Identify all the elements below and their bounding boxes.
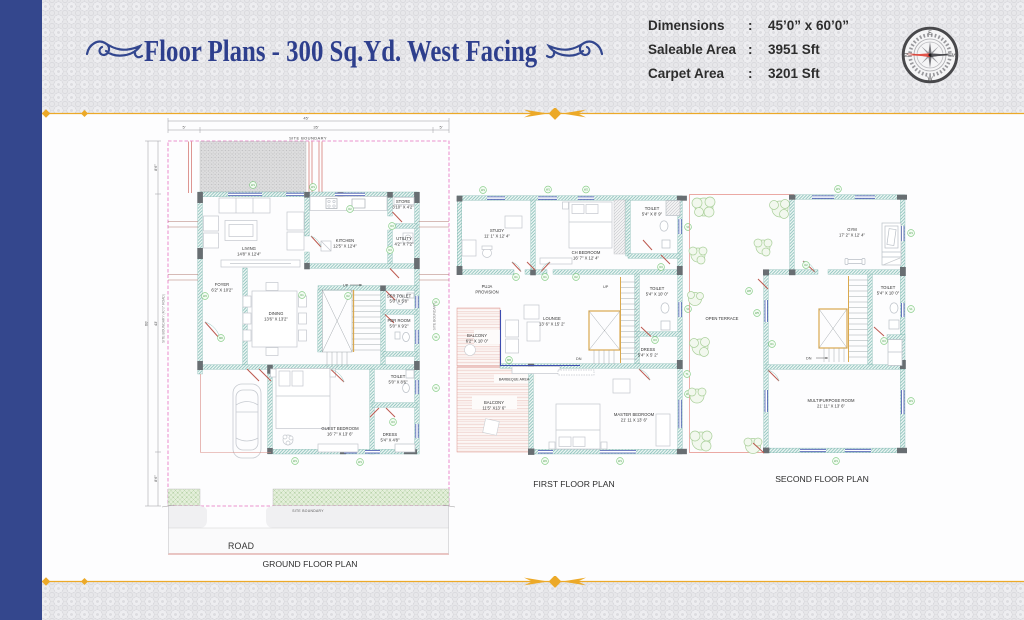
svg-text:SITE BOUNDARY: SITE BOUNDARY	[433, 302, 437, 330]
svg-text:D2: D2	[574, 275, 578, 279]
svg-text:TOILET: TOILET	[650, 286, 665, 291]
svg-text:D3: D3	[882, 339, 886, 343]
svg-text:11'5" X13' 6": 11'5" X13' 6"	[482, 406, 506, 411]
svg-text:OPEN TERRACE: OPEN TERRACE	[706, 316, 739, 321]
svg-text:8'6": 8'6"	[153, 475, 158, 482]
svg-text:14'8" X 12'4": 14'8" X 12'4"	[237, 252, 261, 257]
svg-text:W1: W1	[836, 187, 840, 191]
svg-text:W2: W2	[203, 294, 207, 298]
svg-text:TOILET: TOILET	[645, 206, 660, 211]
svg-text:21' 11 X 13' 6": 21' 11 X 13' 6"	[621, 418, 648, 423]
svg-text:5'4" X 4'8": 5'4" X 4'8"	[380, 438, 400, 443]
svg-text:D2: D2	[346, 294, 350, 298]
svg-text:BALCONY: BALCONY	[467, 333, 487, 338]
svg-text:D3: D3	[390, 224, 394, 228]
svg-text:W1: W1	[546, 188, 550, 192]
svg-text:D1: D1	[300, 293, 304, 297]
svg-text:V1: V1	[434, 335, 438, 339]
svg-text:3'10" X 4'2": 3'10" X 4'2"	[392, 205, 414, 210]
svg-text:5'4" X 8' 9": 5'4" X 8' 9"	[642, 212, 663, 217]
svg-text:FOYER: FOYER	[215, 282, 229, 287]
svg-text:W1: W1	[251, 183, 255, 187]
svg-text:LOUNGE: LOUNGE	[543, 316, 561, 321]
svg-text:60': 60'	[144, 321, 149, 326]
svg-text:UP: UP	[343, 284, 349, 288]
svg-text:4'2" X 7'2": 4'2" X 7'2"	[394, 242, 414, 247]
svg-text:D2: D2	[804, 263, 808, 267]
svg-text:D3: D3	[391, 420, 395, 424]
svg-text:17' 2" X 12' 4": 17' 2" X 12' 4"	[839, 233, 866, 238]
svg-text:W1: W1	[293, 459, 297, 463]
svg-text:45': 45'	[303, 116, 308, 121]
svg-text:D3: D3	[659, 265, 663, 269]
svg-text:35': 35'	[313, 125, 318, 130]
svg-text:12'5" X 12'4": 12'5" X 12'4"	[333, 244, 357, 249]
svg-text:UTILITY: UTILITY	[396, 236, 412, 241]
svg-text:5': 5'	[183, 125, 186, 130]
svg-text:ROAD: ROAD	[228, 541, 254, 551]
svg-text:STUDY: STUDY	[490, 228, 504, 233]
svg-text:BALCONY: BALCONY	[484, 400, 504, 405]
svg-text:5': 5'	[440, 125, 443, 130]
svg-text:8'6": 8'6"	[153, 164, 158, 171]
svg-text:STORE: STORE	[396, 199, 411, 204]
svg-text:MASTER BEDROOM: MASTER BEDROOM	[614, 412, 655, 417]
svg-text:DN: DN	[576, 357, 582, 361]
svg-text:W1: W1	[358, 460, 362, 464]
svg-text:BARBEQUE AREA: BARBEQUE AREA	[499, 378, 530, 382]
svg-text:5'4" X 10' 0": 5'4" X 10' 0"	[877, 291, 900, 296]
svg-text:5'0" X 5'8": 5'0" X 5'8"	[389, 299, 409, 304]
svg-text:SITE BOUNDARY: SITE BOUNDARY	[289, 136, 327, 141]
svg-text:5'0" X 8'6": 5'0" X 8'6"	[388, 380, 408, 385]
svg-text:V1: V1	[909, 307, 913, 311]
svg-text:PDR ROOM: PDR ROOM	[387, 318, 411, 323]
svg-text:GYM: GYM	[847, 227, 857, 232]
svg-text:DN: DN	[806, 357, 812, 361]
svg-text:PROVISION: PROVISION	[475, 290, 498, 295]
svg-text:FIRST FLOOR PLAN: FIRST FLOOR PLAN	[533, 479, 615, 489]
svg-text:W1: W1	[481, 188, 485, 192]
svg-text:MD: MD	[219, 336, 223, 340]
svg-text:MB: MB	[507, 358, 511, 362]
svg-text:V1: V1	[434, 386, 438, 390]
svg-text:W1: W1	[618, 459, 622, 463]
svg-text:21' 11" X 13' 6": 21' 11" X 13' 6"	[817, 404, 846, 409]
svg-text:DINING: DINING	[269, 311, 284, 316]
svg-text:W1: W1	[311, 185, 315, 189]
svg-text:D1: D1	[543, 275, 547, 279]
svg-text:TOILET: TOILET	[881, 285, 896, 290]
svg-text:D3: D3	[388, 248, 392, 252]
svg-text:GUEST BEDROOM: GUEST BEDROOM	[321, 426, 359, 431]
svg-text:16' 7" X 13' 6": 16' 7" X 13' 6"	[327, 432, 354, 437]
svg-text:11' 1" X 12' 4": 11' 1" X 12' 4"	[484, 234, 510, 239]
svg-text:5'4" X 10' 0": 5'4" X 10' 0"	[646, 292, 669, 297]
svg-text:UP: UP	[603, 285, 609, 289]
svg-text:PUJA: PUJA	[482, 284, 493, 289]
svg-text:DRESS: DRESS	[383, 432, 398, 437]
svg-text:W2: W2	[584, 188, 588, 192]
svg-text:MULTIPURPOSE ROOM: MULTIPURPOSE ROOM	[808, 398, 855, 403]
svg-text:TOILET: TOILET	[391, 374, 406, 379]
svg-text:W8: W8	[747, 289, 751, 293]
svg-text:5'4" X 5' 2": 5'4" X 5' 2"	[638, 353, 659, 358]
svg-text:13' 6" X 15' 2": 13' 6" X 15' 2"	[539, 322, 566, 327]
svg-text:43': 43'	[153, 321, 158, 326]
svg-text:DRESS: DRESS	[641, 347, 656, 352]
svg-text:SITE BOUNDARY (40'0" ROAD): SITE BOUNDARY (40'0" ROAD)	[162, 294, 166, 343]
svg-text:W1: W1	[909, 399, 913, 403]
svg-text:SECOND FLOOR PLAN: SECOND FLOOR PLAN	[775, 474, 869, 484]
svg-text:LIVING: LIVING	[242, 246, 256, 251]
svg-text:D3: D3	[653, 338, 657, 342]
svg-text:KITCHEN: KITCHEN	[336, 238, 354, 243]
svg-text:SITE BOUNDARY: SITE BOUNDARY	[292, 509, 324, 513]
svg-text:W1: W1	[909, 231, 913, 235]
svg-text:6'2" X 10'2": 6'2" X 10'2"	[211, 288, 233, 293]
svg-text:13'6" X 13'2": 13'6" X 13'2"	[264, 317, 288, 322]
svg-text:D2: D2	[348, 207, 352, 211]
svg-text:CH BEDROOM: CH BEDROOM	[572, 250, 601, 255]
svg-text:6'2" X 10' 0": 6'2" X 10' 0"	[466, 339, 489, 344]
svg-text:W5: W5	[755, 311, 759, 315]
svg-text:W1: W1	[834, 459, 838, 463]
svg-text:5'0" X 9'2": 5'0" X 9'2"	[389, 324, 409, 329]
svg-text:W2: W2	[543, 459, 547, 463]
svg-text:E: E	[928, 31, 932, 37]
svg-text:GROUND FLOOR PLAN: GROUND FLOOR PLAN	[262, 559, 357, 569]
svg-text:D1: D1	[514, 275, 518, 279]
svg-text:D1: D1	[770, 342, 774, 346]
svg-text:16' 7" X 12' 4": 16' 7" X 12' 4"	[573, 256, 600, 261]
